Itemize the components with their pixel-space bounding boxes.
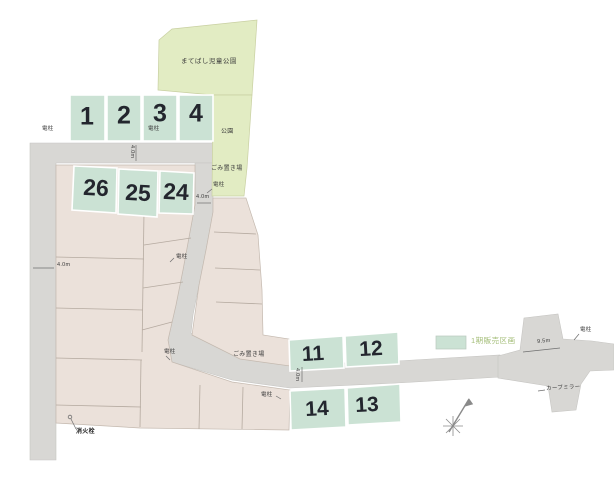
lot-number-2: 2 xyxy=(117,104,131,129)
site-plan-map: 1 2 3 4 26 25 24 11 12 14 13 まてばし児童公園 公園… xyxy=(0,0,614,500)
legend-swatch xyxy=(436,336,466,349)
pole-label-3: 電柱 xyxy=(213,183,225,189)
lot-number-13: 13 xyxy=(355,394,379,416)
dim-mid-road: 4.0m xyxy=(196,195,209,201)
lot-number-11: 11 xyxy=(301,343,324,365)
pole-label-5: 電柱 xyxy=(164,350,176,356)
dim-top-road: 4.0m xyxy=(129,145,135,158)
road-intersection xyxy=(498,314,614,412)
lot-number-26: 26 xyxy=(83,176,110,200)
pole-label-6: 電柱 xyxy=(261,393,273,399)
pole-label-2: 電柱 xyxy=(148,127,160,133)
north-arrow-icon xyxy=(443,399,473,436)
park-name-label: まてばし児童公園 xyxy=(181,59,237,66)
site-plan-graphics xyxy=(0,0,614,500)
koen-parcel-shape xyxy=(212,95,252,196)
lot-number-1: 1 xyxy=(80,105,94,130)
lot-number-25: 25 xyxy=(125,181,152,205)
dim-intersection: 9.5m xyxy=(537,339,551,346)
lot-number-24: 24 xyxy=(163,180,190,204)
pole-label-1: 電柱 xyxy=(42,127,54,133)
garbage-label-bottom: ごみ置き場 xyxy=(233,352,265,358)
lot-number-3: 3 xyxy=(153,102,167,127)
lot-number-12: 12 xyxy=(359,338,383,360)
legend-phase1-label: 1期販売区画 xyxy=(471,337,516,345)
hydrant-label: 消火栓 xyxy=(76,429,95,435)
dim-left-road: 4.0m xyxy=(57,263,70,269)
koen-label: 公園 xyxy=(221,129,234,135)
lot-number-14: 14 xyxy=(305,398,329,420)
pole-label-4: 電柱 xyxy=(176,255,188,261)
lot-number-4: 4 xyxy=(189,102,203,127)
garbage-label-top: ごみ置き場 xyxy=(211,166,243,172)
pole-label-7: 電柱 xyxy=(580,328,592,334)
dim-bottom-road: 4.0m xyxy=(294,368,300,381)
